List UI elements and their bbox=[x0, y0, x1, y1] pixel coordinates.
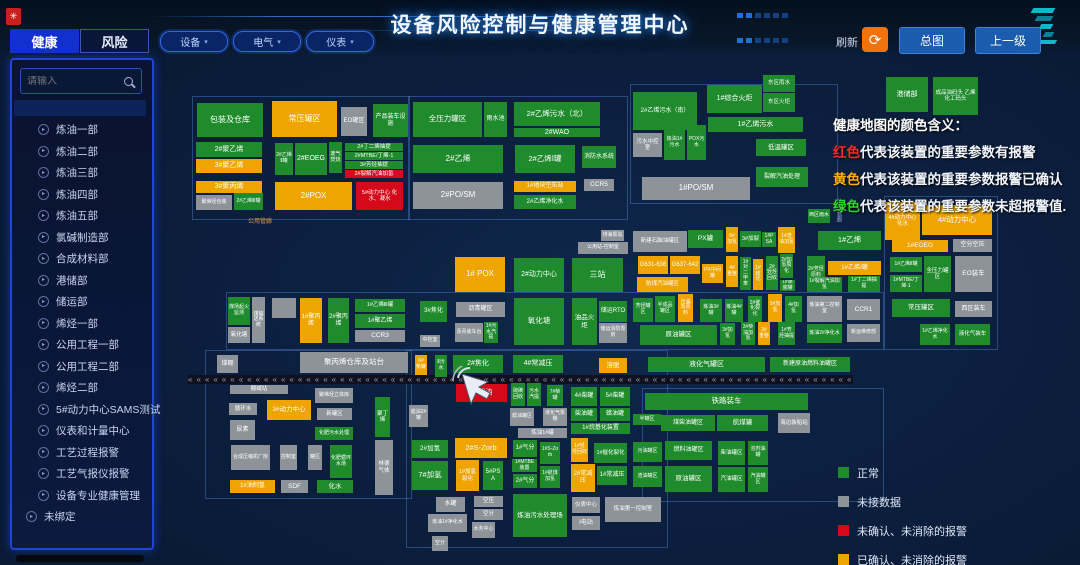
map-block[interactable]: G637-642 bbox=[670, 256, 700, 274]
map-block[interactable]: 5#加氢 bbox=[768, 294, 782, 322]
sidebar-item-炼油五部[interactable]: ▸炼油五部 bbox=[12, 208, 150, 223]
map-block[interactable]: 油品火炬 bbox=[572, 298, 597, 345]
map-block[interactable]: 铁路装车 bbox=[645, 393, 808, 410]
map-block[interactable]: 4#柴罐 bbox=[571, 387, 597, 406]
status-legend-row: 已确认、未消除的报警 bbox=[838, 545, 967, 565]
sidebar-item-氯碱制造部[interactable]: ▸氯碱制造部 bbox=[12, 230, 150, 245]
map-block[interactable]: 3#加裂 bbox=[740, 231, 761, 247]
map-block[interactable]: 聚丙烯仓库及站台 bbox=[300, 352, 408, 373]
map-block[interactable]: 消防水系统 bbox=[582, 146, 616, 168]
map-block[interactable]: 污水汽提 bbox=[527, 383, 541, 406]
search-icon[interactable] bbox=[124, 77, 133, 86]
map-block[interactable]: 炼油1#罐 bbox=[518, 428, 567, 438]
status-swatch bbox=[838, 496, 849, 507]
map-block[interactable]: 全压力罐区 bbox=[924, 256, 951, 292]
map-block[interactable]: 聚丁烯 bbox=[375, 397, 390, 437]
map-block[interactable]: 聚烯烃包装 bbox=[196, 195, 232, 210]
map-block[interactable]: 1#歧化 bbox=[753, 259, 763, 290]
expand-icon[interactable]: ▸ bbox=[38, 425, 49, 436]
map-block[interactable]: 常压罐区 bbox=[272, 101, 337, 137]
map-block[interactable]: 蜡油罐区 bbox=[510, 408, 534, 426]
map-block[interactable]: 航煤汽油罐区 bbox=[637, 277, 688, 292]
map-block[interactable]: 氧化塘 bbox=[228, 327, 250, 343]
map-block[interactable]: 污油泵原料 bbox=[678, 294, 693, 322]
map-block[interactable]: 2#WAO bbox=[514, 128, 600, 137]
header-deco-line bbox=[150, 16, 580, 17]
map-block[interactable]: 1#常减压 bbox=[597, 466, 627, 485]
map-block[interactable]: 液化气装车 bbox=[955, 324, 990, 345]
map-block[interactable]: 控制室 bbox=[280, 445, 297, 470]
sidebar-item-烯烃一部[interactable]: ▸烯烃一部 bbox=[12, 316, 150, 331]
map-block[interactable]: 柴油罐 bbox=[571, 408, 597, 421]
map-block[interactable]: 1#综合火炬 bbox=[707, 85, 762, 113]
map-block[interactable]: 中控室 bbox=[420, 335, 440, 347]
expand-icon[interactable]: ▸ bbox=[38, 339, 49, 350]
map-block[interactable]: 1#PSA bbox=[762, 232, 776, 247]
map-block[interactable]: 炼油1#污水 bbox=[664, 125, 685, 160]
map-block[interactable]: 1#气分 bbox=[513, 440, 537, 457]
map-block[interactable]: 2#POX bbox=[275, 182, 352, 210]
equipment-health-dashboard: ««««««««««««««««««««««««««««««««««««««««… bbox=[0, 0, 1080, 565]
map-block[interactable]: 蜡油罐 bbox=[600, 408, 630, 421]
map-block[interactable]: 空分 bbox=[432, 536, 448, 551]
expand-icon[interactable]: ▸ bbox=[38, 404, 49, 415]
status-legend-row: 未确认、未消除的报警 bbox=[838, 516, 967, 545]
map-block[interactable]: 3#芳烃抽提 bbox=[345, 161, 403, 169]
refresh-button[interactable]: ⟳ bbox=[862, 27, 888, 52]
map-block[interactable]: 西区雨水 bbox=[808, 209, 830, 223]
map-block[interactable]: 公用站-控制室 bbox=[578, 242, 628, 254]
map-block[interactable]: 港储部 bbox=[886, 77, 928, 112]
map-block[interactable]: 三站 bbox=[572, 258, 623, 292]
map-block[interactable]: 1#丁二烯抽提 bbox=[848, 276, 880, 292]
map-block[interactable]: 2#聚乙烯 bbox=[196, 142, 262, 157]
map-block[interactable]: 1#污水汽提 bbox=[484, 322, 498, 343]
map-block[interactable]: 1# POX bbox=[455, 257, 505, 292]
sidebar-scrollbar[interactable] bbox=[16, 555, 144, 562]
map-block[interactable]: 空分空压 bbox=[953, 239, 992, 252]
map-block[interactable]: 1#渣油加氢 bbox=[778, 227, 795, 253]
map-block[interactable]: 4#重整 bbox=[726, 256, 738, 287]
map-block[interactable]: EO罐区 bbox=[341, 107, 367, 136]
map-block[interactable]: 炼油4#罐 bbox=[725, 299, 743, 322]
map-block[interactable]: 2#动力中心 bbox=[514, 258, 564, 292]
map-block[interactable]: 渣油罐区 bbox=[633, 466, 662, 487]
chevron-down-icon: ▾ bbox=[204, 38, 208, 46]
map-block[interactable]: 东区火炬 bbox=[763, 93, 795, 112]
expand-icon[interactable]: ▸ bbox=[38, 382, 49, 393]
sidebar-item-合成材料部[interactable]: ▸合成材料部 bbox=[12, 251, 150, 266]
map-block[interactable]: 3#动力中心 bbox=[267, 400, 311, 420]
map-block[interactable]: 原油罐区 bbox=[640, 325, 717, 345]
color-legend-line: 红色代表该装置的重要参数有报警 bbox=[833, 139, 1066, 166]
header-deco-dots bbox=[737, 38, 788, 43]
map-block[interactable]: 5#动力中心 化水、凝水 bbox=[356, 182, 403, 210]
map-block[interactable]: 2#催化裂化 bbox=[748, 296, 762, 322]
expand-icon[interactable]: ▸ bbox=[38, 447, 49, 458]
map-block[interactable]: 溶脱 bbox=[599, 358, 627, 373]
map-block[interactable]: 柴油罐区 bbox=[718, 441, 745, 465]
map-block[interactable]: 化肥污水处理 bbox=[315, 427, 353, 440]
status-legend-row: 正常 bbox=[838, 458, 967, 487]
map-block[interactable]: 2#加氢裂化 bbox=[780, 254, 793, 278]
sidebar-band bbox=[14, 100, 146, 116]
map-block[interactable]: 芳烃罐区 bbox=[633, 298, 653, 322]
map-block[interactable]: 1#轻烃回收 bbox=[571, 438, 588, 462]
map-block[interactable]: 沥青装车台 bbox=[455, 323, 483, 342]
map-block[interactable]: 海边装船站 bbox=[778, 413, 810, 433]
map-block[interactable]: 新罐区 bbox=[317, 408, 352, 420]
color-legend-line: 绿色代表该装置的重要参数未超报警值. bbox=[833, 193, 1066, 220]
map-block[interactable]: 炼油第一控制室 bbox=[605, 497, 661, 522]
map-block[interactable]: 炼油第二控制室 bbox=[807, 296, 842, 322]
refresh-label: 刷新 bbox=[836, 34, 858, 50]
map-block[interactable]: 航煤罐 bbox=[717, 415, 768, 431]
map-block[interactable]: 2#气分 bbox=[513, 474, 537, 488]
map-block[interactable]: 1#EOEG bbox=[892, 240, 948, 252]
map-block[interactable]: 新建原油燃料油罐区 bbox=[770, 357, 850, 372]
map-block[interactable]: Ⅰ电站 bbox=[572, 516, 600, 530]
map-block[interactable]: 1#乙烯Ⅰ罐 bbox=[828, 261, 881, 275]
status-swatch bbox=[838, 467, 849, 478]
map-block[interactable]: 1#聚丙烯 bbox=[300, 298, 322, 343]
map-block[interactable]: 2#裂解汽油加氢 bbox=[345, 170, 403, 178]
map-block[interactable]: 产品装车设施 bbox=[373, 104, 408, 137]
map-block[interactable]: 煤棚 bbox=[217, 355, 238, 373]
map-block[interactable]: 2#EOEG bbox=[295, 143, 327, 175]
map-block[interactable]: 2#乙烯Ⅲ罐 bbox=[234, 193, 263, 210]
color-legend-line: 黄色代表该装置的重要参数报警已确认 bbox=[833, 166, 1066, 193]
expand-icon[interactable]: ▸ bbox=[38, 124, 49, 135]
map-block[interactable]: 3#聚乙烯 bbox=[196, 159, 262, 173]
expand-icon[interactable]: ▸ bbox=[38, 232, 49, 243]
map-block[interactable]: 8#蜡油 bbox=[456, 384, 507, 402]
map-block[interactable]: 1#催化裂化 bbox=[594, 443, 627, 463]
map-block[interactable]: 酸碱站 bbox=[230, 385, 288, 394]
map-block[interactable]: 1#乙烯污水 bbox=[708, 117, 803, 132]
map-block[interactable]: 7#加氢 bbox=[412, 461, 448, 490]
map-block[interactable]: 1#加氢裂化 bbox=[456, 460, 479, 491]
map-block[interactable]: 燃料油罐区 bbox=[665, 441, 712, 460]
map-block[interactable]: 炼油2#净化水 bbox=[807, 324, 842, 343]
sidebar-item-未绑定[interactable]: ▸未绑定 bbox=[12, 509, 150, 524]
map-block[interactable]: PX中间罐 bbox=[702, 264, 723, 283]
map-block[interactable]: 1#承装罐 bbox=[780, 280, 795, 291]
map-block[interactable]: 汽油罐区 bbox=[748, 467, 768, 492]
expand-icon[interactable]: ▸ bbox=[38, 275, 49, 286]
map-block[interactable]: 2#焦化 bbox=[453, 355, 503, 373]
map-block[interactable]: 5#PSA bbox=[483, 461, 503, 490]
expand-icon[interactable]: ▸ bbox=[38, 253, 49, 264]
map-block[interactable]: 硫磺回收 bbox=[511, 383, 525, 406]
sidebar-item-炼油四部[interactable]: ▸炼油四部 bbox=[12, 187, 150, 202]
color-legend-title: 健康地图的颜色含义： bbox=[833, 112, 1066, 139]
sidebar-item-公用工程一部[interactable]: ▸公用工程一部 bbox=[12, 337, 150, 352]
map-block[interactable]: 原油罐区 bbox=[665, 466, 712, 492]
map-block[interactable]: 5#柴罐 bbox=[600, 387, 630, 406]
map-block[interactable]: 裂解汽油处理 bbox=[756, 167, 808, 187]
map-block[interactable]: 1#裂解汽油加氢 bbox=[807, 277, 842, 292]
map-block[interactable]: 西区装车 bbox=[955, 301, 992, 317]
sidebar-item-炼油二部[interactable]: ▸炼油二部 bbox=[12, 144, 150, 159]
color-legend: 健康地图的颜色含义：红色代表该装置的重要参数有报警黄色代表该装置的重要参数报警已… bbox=[833, 112, 1066, 220]
chevron-down-icon: ▾ bbox=[277, 38, 281, 46]
status-legend-row: 未接数据 bbox=[838, 487, 967, 516]
map-block[interactable]: 3#重整 bbox=[758, 322, 770, 345]
map-block[interactable]: 3#加氢 bbox=[720, 323, 735, 345]
sidebar-item-储运部[interactable]: ▸储运部 bbox=[12, 294, 150, 309]
map-block[interactable]: 污油罐区 bbox=[633, 442, 662, 462]
map-block[interactable]: 1#MTBE/丁烯-1 bbox=[890, 275, 922, 292]
map-block[interactable]: 沥青罐区 bbox=[456, 302, 505, 317]
expand-icon[interactable]: ▸ bbox=[38, 167, 49, 178]
header-deco-dots bbox=[737, 13, 788, 18]
filter-设备[interactable]: 设备▾ bbox=[160, 31, 228, 52]
sidebar: ▸炼油一部▸炼油二部▸炼油三部▸炼油四部▸炼油五部▸氯碱制造部▸合成材料部▸港储… bbox=[10, 58, 154, 550]
logo-icon: ✳ bbox=[6, 8, 21, 25]
sidebar-item-炼油一部[interactable]: ▸炼油一部 bbox=[12, 122, 150, 137]
map-block[interactable]: 空分 bbox=[474, 509, 503, 520]
map-block[interactable]: 2#乙烯 bbox=[413, 145, 503, 173]
map-block[interactable]: 水务中心 bbox=[472, 522, 495, 538]
sidebar-item-5#动力中心SAMS测试[interactable]: ▸5#动力中心SAMS测试 bbox=[12, 402, 150, 417]
sidebar-item-烯烃二部[interactable]: ▸烯烃二部 bbox=[12, 380, 150, 395]
search-input[interactable] bbox=[21, 76, 124, 87]
tab-健康[interactable]: 健康 bbox=[10, 29, 79, 53]
map-block[interactable]: 1#对二甲苯 bbox=[740, 257, 751, 290]
status-swatch bbox=[838, 525, 849, 536]
map-block[interactable]: 合成压缩机厂房 bbox=[231, 445, 270, 470]
map-block[interactable]: 废气焚烧 bbox=[329, 142, 342, 173]
search-box[interactable] bbox=[20, 68, 142, 94]
map-block[interactable]: 6#加氢 bbox=[726, 227, 738, 252]
map-block[interactable]: 储运RTO bbox=[599, 301, 627, 322]
map-block[interactable]: 1#聚乙烯 bbox=[355, 314, 405, 328]
map-block[interactable]: 2#乙烯Ⅱ罐 bbox=[275, 143, 293, 175]
map-block[interactable]: 2#PO/SM bbox=[413, 182, 503, 209]
sidebar-item-设备专业健康管理[interactable]: ▸设备专业健康管理 bbox=[12, 488, 150, 503]
map-block[interactable]: 林德气体 bbox=[375, 440, 393, 495]
map-block[interactable]: 液化气罐区 bbox=[648, 357, 765, 372]
map-block[interactable]: 水罐 bbox=[436, 497, 465, 512]
map-block[interactable]: 氧化塘 bbox=[514, 298, 564, 345]
map-block[interactable]: 2#轻烃回收 bbox=[766, 256, 778, 290]
map-block[interactable]: 煤输送系统 bbox=[252, 297, 265, 343]
sidebar-item-工艺气报仪报警[interactable]: ▸工艺气报仪报警 bbox=[12, 466, 150, 481]
map-block[interactable]: 2#乙烯污水（北） bbox=[514, 102, 600, 126]
map-block[interactable]: 3#柴油加氢 bbox=[741, 322, 755, 345]
map-block[interactable]: 常压罐区 bbox=[892, 299, 950, 317]
map-block[interactable]: 储运消防泵房 bbox=[599, 323, 627, 343]
expand-icon[interactable]: ▸ bbox=[38, 361, 49, 372]
map-block[interactable]: 雨水池 bbox=[484, 102, 507, 137]
sidebar-item-公用工程二部[interactable]: ▸公用工程二部 bbox=[12, 359, 150, 374]
map-block[interactable]: 1#油制氢 bbox=[230, 480, 275, 493]
map-block[interactable]: 汽油罐区 bbox=[718, 467, 745, 492]
map-block[interactable]: 1#烷基化装置 bbox=[571, 423, 630, 434]
map-block[interactable]: 2#聚丙烯 bbox=[328, 298, 349, 343]
map-block[interactable]: 1#航煤加氢 bbox=[540, 466, 560, 488]
status-swatch bbox=[838, 554, 849, 565]
expand-icon[interactable]: ▸ bbox=[38, 189, 49, 200]
map-block[interactable]: CCR5 bbox=[584, 179, 614, 191]
map-block[interactable]: 2#MTBE/丁烯-1 bbox=[345, 152, 403, 160]
map-block[interactable]: POX污水 bbox=[687, 125, 706, 160]
expand-icon[interactable]: ▸ bbox=[38, 468, 49, 479]
overview-button[interactable]: 总图 bbox=[899, 27, 965, 54]
map-block[interactable]: PX罐 bbox=[688, 230, 723, 248]
filter-电气[interactable]: 电气▾ bbox=[233, 31, 301, 52]
map-block[interactable]: 1#S-Zorb bbox=[540, 442, 560, 464]
map-block[interactable]: 2#乙烯净化水 bbox=[514, 195, 576, 209]
map-block[interactable]: 1#MTBE装置 bbox=[512, 459, 537, 472]
map-block[interactable]: SDF bbox=[281, 480, 308, 493]
map-block[interactable]: 排海泵站 bbox=[601, 230, 624, 241]
map-block[interactable]: 4#常减压 bbox=[513, 355, 563, 373]
map-block[interactable]: 1#乙烯Ⅲ罐 bbox=[355, 299, 405, 312]
road-label: 公用管廊 bbox=[248, 216, 272, 225]
map-block[interactable]: 6#柴罐 bbox=[415, 355, 427, 375]
map-block[interactable]: 1#乙烯净化水 bbox=[920, 324, 950, 345]
map-block[interactable]: 2#加氢 bbox=[412, 440, 448, 458]
sidebar-item-工艺过程报警[interactable]: ▸工艺过程报警 bbox=[12, 445, 150, 460]
map-block[interactable]: 7#柴罐 bbox=[547, 385, 563, 406]
map-block[interactable]: 3#聚丙烯 bbox=[196, 181, 262, 193]
map-block[interactable]: CCR3 bbox=[355, 330, 405, 342]
map-block[interactable]: 包装及仓库 bbox=[197, 103, 263, 137]
map-block[interactable]: 1#乙烯Ⅱ罐 bbox=[890, 257, 922, 272]
map-block[interactable]: 全压力罐区 bbox=[413, 102, 482, 137]
map-block[interactable]: 新运维修部 bbox=[847, 324, 880, 342]
map-block[interactable]: 液化气泵棚 bbox=[543, 408, 567, 426]
map-block[interactable]: EO装车 bbox=[955, 256, 992, 292]
expand-icon[interactable]: ▸ bbox=[38, 296, 49, 307]
map-block[interactable]: G631-636 bbox=[638, 256, 668, 274]
sidebar-item-炼油三部[interactable]: ▸炼油三部 bbox=[12, 165, 150, 180]
map-block[interactable]: 污水中控室 bbox=[633, 133, 662, 157]
map-block[interactable]: CCR1 bbox=[847, 299, 880, 320]
map-block[interactable]: 1#地块空压站 bbox=[514, 181, 576, 192]
map-block[interactable]: 东区雨水 bbox=[763, 75, 795, 92]
map-block[interactable]: 成品油码头 乙烯化工码头 bbox=[933, 77, 978, 115]
sidebar-item-仪表和计量中心[interactable]: ▸仪表和计量中心 bbox=[12, 423, 150, 438]
map-block[interactable]: 1#乙烯 bbox=[818, 231, 881, 250]
map-block[interactable]: 2#常减压 bbox=[571, 464, 595, 492]
map-block[interactable] bbox=[272, 298, 296, 318]
map-block[interactable]: 罐区 bbox=[308, 445, 322, 470]
map-block[interactable]: 空压 bbox=[474, 496, 503, 507]
header-deco-line bbox=[250, 30, 580, 31]
map-block[interactable]: 半成品罐区 bbox=[655, 296, 675, 322]
map-block[interactable]: 2#乙烯Ⅰ罐 bbox=[515, 145, 575, 173]
status-legend: 正常未接数据未确认、未消除的报警已确认、未消除的报警 bbox=[838, 458, 967, 565]
expand-icon[interactable]: ▸ bbox=[38, 210, 49, 221]
map-block[interactable]: 2#S-Zorb bbox=[455, 438, 507, 458]
map-block[interactable]: 蜡油2#罐 bbox=[409, 405, 428, 427]
map-block[interactable]: 煤场起火监测 bbox=[228, 297, 250, 325]
map-block[interactable]: 聚烯烃立体库 bbox=[315, 388, 353, 403]
map-block[interactable]: 炼油污水处理场 bbox=[513, 494, 567, 537]
filter-仪表[interactable]: 仪表▾ bbox=[306, 31, 374, 52]
map-block[interactable]: 仪表中心 bbox=[572, 497, 600, 513]
map-block[interactable]: 半罐区 bbox=[633, 414, 661, 425]
map-block[interactable]: 1#芳烃抽提 bbox=[778, 322, 795, 345]
map-block[interactable]: 2#丁二烯抽提 bbox=[345, 143, 403, 151]
map-block[interactable]: 循环水 bbox=[229, 403, 257, 415]
map-block[interactable]: 尿素 bbox=[230, 420, 255, 440]
expand-icon[interactable]: ▸ bbox=[26, 511, 37, 522]
expand-icon[interactable]: ▸ bbox=[38, 318, 49, 329]
sidebar-item-港储部[interactable]: ▸港储部 bbox=[12, 273, 150, 288]
sidebar-tree: ▸炼油一部▸炼油二部▸炼油三部▸炼油四部▸炼油五部▸氯碱制造部▸合成材料部▸港储… bbox=[12, 122, 150, 524]
tab-风险[interactable]: 风险 bbox=[80, 29, 149, 53]
map-block[interactable]: 1#PO/SM bbox=[642, 177, 750, 200]
up-level-button[interactable]: 上一级 bbox=[975, 27, 1041, 54]
map-block[interactable]: 新建石脑油罐区 bbox=[633, 231, 687, 252]
map-block[interactable]: Ⅱ污水 bbox=[435, 355, 447, 377]
map-block[interactable]: 炼油1#净化水 bbox=[428, 514, 467, 532]
map-block[interactable]: 炼油3#罐 bbox=[700, 299, 722, 322]
expand-icon[interactable]: ▸ bbox=[38, 490, 49, 501]
map-block[interactable]: 化水 bbox=[317, 480, 353, 493]
map-block[interactable]: 溶剂油罐 bbox=[748, 441, 768, 465]
map-block[interactable]: 煤柴油罐区 bbox=[661, 415, 715, 431]
map-block[interactable]: 化肥循环水场 bbox=[330, 445, 352, 478]
chevron-down-icon: ▾ bbox=[350, 38, 354, 46]
map-block[interactable]: 低温罐区 bbox=[756, 139, 806, 156]
map-block[interactable]: 4#加氢 bbox=[785, 296, 802, 322]
map-block[interactable]: 3#焦化 bbox=[420, 301, 447, 322]
expand-icon[interactable]: ▸ bbox=[38, 146, 49, 157]
